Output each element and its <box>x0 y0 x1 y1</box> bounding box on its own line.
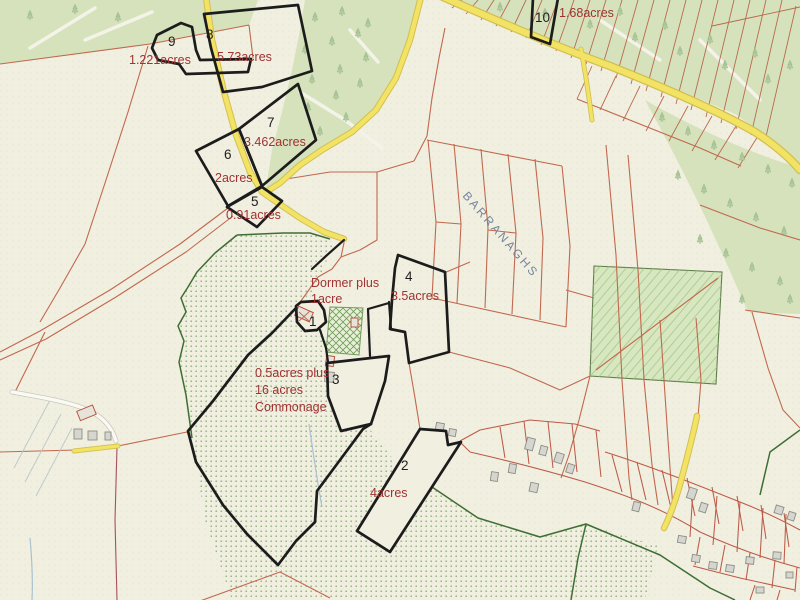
parcel-4-number: 4 <box>405 269 413 284</box>
parcel-4-acreage: 3.5acres <box>391 289 439 303</box>
parcel-6-number: 6 <box>224 147 232 162</box>
parcel-6-acreage: 2acres <box>215 171 253 185</box>
parcel-10-acreage: 1.68acres <box>559 6 614 20</box>
parcel-3-number: 3 <box>332 372 340 387</box>
parcel-3-note-line3: Commonage <box>255 400 327 414</box>
parcel-7-acreage: 3.462acres <box>244 135 306 149</box>
parcel-3-note-line2: 16 acres <box>255 383 303 397</box>
orchard-plot <box>326 307 363 355</box>
parcel-2-number: 2 <box>401 458 409 473</box>
parcel-1-note-line2: 1acre <box>311 292 342 306</box>
cadastral-map-image: 9 1.221acres 8 5.73acres 7 3.462acres 6 … <box>0 0 800 600</box>
parcel-10-number: 10 <box>535 10 550 25</box>
parcel-3-note-line1: 0.5acres plus <box>255 366 329 380</box>
parcel-8-number: 8 <box>206 27 214 42</box>
parcel-5-acreage: 0.91acres <box>226 208 281 222</box>
parcel-2-acreage: 4acres <box>370 486 408 500</box>
parcel-9-acreage: 1.221acres <box>129 53 191 67</box>
parcel-1-number: 1 <box>309 314 317 329</box>
parcel-1-note-line1: Dormer plus <box>311 276 379 290</box>
parcel-9-number: 9 <box>168 34 176 49</box>
map-canvas: 9 1.221acres 8 5.73acres 7 3.462acres 6 … <box>0 0 800 600</box>
parcel-7-number: 7 <box>267 115 275 130</box>
parcel-8-acreage: 5.73acres <box>217 50 272 64</box>
parcel-5-number: 5 <box>251 194 259 209</box>
